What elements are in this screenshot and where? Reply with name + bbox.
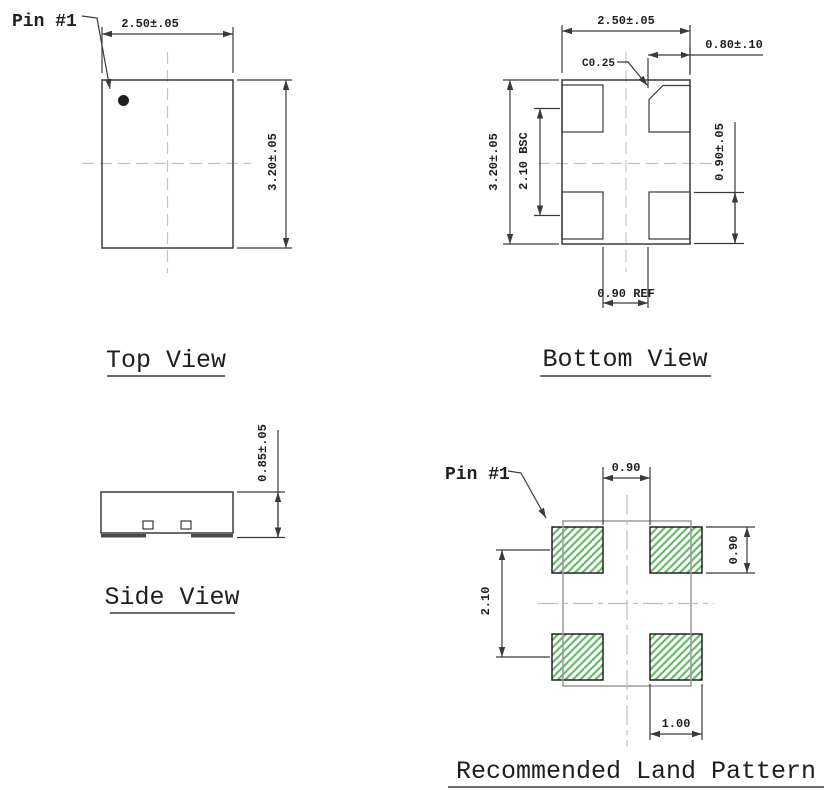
- side-view-package-outline: [101, 492, 233, 533]
- land-pad-top-left: [552, 527, 603, 573]
- land-pattern: Pin #1 0.90 0.90 2.10 1.00 Recommended: [445, 461, 824, 787]
- land-pad-bottom-left: [552, 634, 603, 680]
- drawing-svg: Pin #1 2.50±.05 3.20±.05 Top View: [0, 0, 833, 797]
- top-view-width-text: 2.50±.05: [121, 17, 179, 31]
- side-view: 0.85±.05 Side View: [101, 424, 285, 613]
- bottom-view-pad-bottom-left: [562, 192, 603, 239]
- side-view-seating-bar-right: [191, 534, 233, 538]
- land-pad-top-right: [650, 527, 702, 573]
- side-view-title: Side View: [104, 583, 239, 612]
- top-view-title: Top View: [106, 346, 226, 375]
- bottom-view-pad-height-text: 0.90±.05: [713, 123, 727, 181]
- bottom-view-pad-height-dimension: 0.90±.05: [694, 122, 744, 244]
- bottom-view-width-text: 2.50±.05: [597, 14, 655, 28]
- bottom-view-title: Bottom View: [542, 345, 707, 374]
- bottom-view-chamfer-callout: C0.25: [582, 58, 648, 86]
- land-pattern-pitch-text: 2.10: [479, 587, 493, 616]
- bottom-view-pad-bottom-right: [649, 192, 690, 239]
- package-drawing-canvas: Pin #1 2.50±.05 3.20±.05 Top View: [0, 0, 833, 797]
- land-pattern-pad-height-text: 0.90: [727, 536, 741, 565]
- land-pattern-pad-width-text: 1.00: [662, 717, 691, 731]
- land-pattern-gap-text: 0.90: [612, 461, 641, 475]
- land-pad-bottom-right: [650, 634, 702, 680]
- top-view-pin1-leader-arrow: [82, 16, 110, 89]
- land-pattern-gap-dimension: 0.90: [603, 461, 650, 525]
- bottom-view-chamfer-leader-arrow: [617, 62, 648, 86]
- side-view-pad-right: [181, 521, 191, 529]
- bottom-view-chamfer-text: C0.25: [582, 58, 615, 70]
- bottom-view-pad-gap-text: 0.90 REF: [597, 287, 655, 301]
- bottom-view-height-text: 3.20±.05: [487, 133, 501, 191]
- land-pattern-pin1-leader-arrow: [508, 471, 546, 518]
- pin1-dot: [118, 95, 129, 106]
- land-pattern-pin1-label: Pin #1: [445, 465, 510, 485]
- bottom-view-pad-pitch-text: 2.10 BSC: [517, 132, 531, 190]
- top-view-pin1-label: Pin #1: [12, 12, 77, 32]
- top-view-width-dimension: 2.50±.05: [102, 17, 233, 73]
- bottom-view-pad-width-text: 0.80±.10: [705, 38, 763, 52]
- side-view-pad-left: [143, 521, 153, 529]
- side-view-height-dimension: 0.85±.05: [237, 424, 285, 537]
- side-view-seating-bar-left: [101, 534, 146, 538]
- bottom-view-pad-top-right-chamfered: [649, 86, 690, 133]
- bottom-view: 2.50±.05 0.80±.10 C0.25 3.20±.05 2.10 BS…: [487, 14, 763, 376]
- top-view-height-text: 3.20±.05: [266, 133, 280, 191]
- land-pattern-pad-height-dimension: 0.90: [706, 527, 755, 573]
- bottom-view-pad-pitch-dimension: 2.10 BSC: [517, 109, 560, 216]
- land-pattern-title: Recommended Land Pattern: [456, 757, 816, 786]
- side-view-height-text: 0.85±.05: [256, 424, 270, 482]
- bottom-view-pad-top-left: [562, 85, 603, 132]
- top-view: Pin #1 2.50±.05 3.20±.05 Top View: [12, 12, 292, 376]
- land-pattern-pad-width-dimension: 1.00: [650, 684, 702, 740]
